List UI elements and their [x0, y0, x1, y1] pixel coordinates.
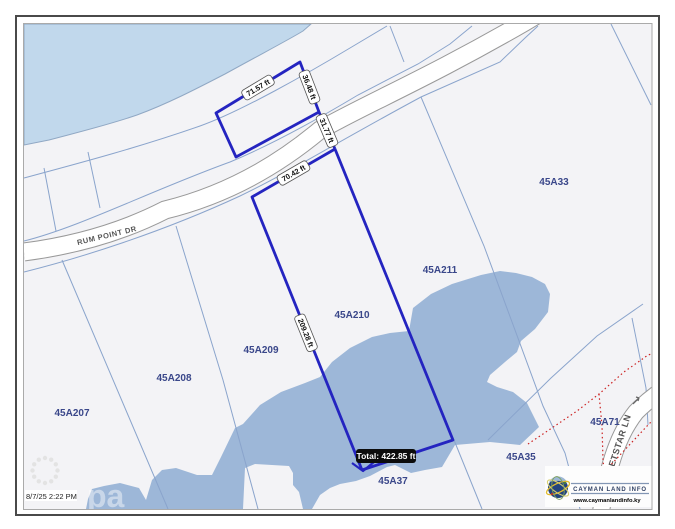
svg-text:pa: pa — [87, 478, 125, 514]
svg-text:45A207: 45A207 — [54, 408, 89, 419]
svg-text:45A37: 45A37 — [378, 476, 408, 487]
svg-text:45A210: 45A210 — [334, 310, 369, 321]
svg-text:CAYMAN LAND INFO: CAYMAN LAND INFO — [573, 487, 647, 493]
svg-text:Total: 422.85 ft: Total: 422.85 ft — [357, 451, 416, 461]
svg-text:45A35: 45A35 — [506, 452, 536, 463]
svg-text:45A211: 45A211 — [423, 265, 458, 276]
svg-text:45A71: 45A71 — [590, 417, 620, 428]
svg-text:45A209: 45A209 — [243, 345, 278, 356]
svg-text:45A33: 45A33 — [539, 177, 569, 188]
svg-text:45A208: 45A208 — [156, 373, 191, 384]
svg-text:www.caymanlandinfo.ky: www.caymanlandinfo.ky — [572, 498, 641, 504]
svg-text:8/7/25 2:22 PM: 8/7/25 2:22 PM — [26, 492, 77, 501]
